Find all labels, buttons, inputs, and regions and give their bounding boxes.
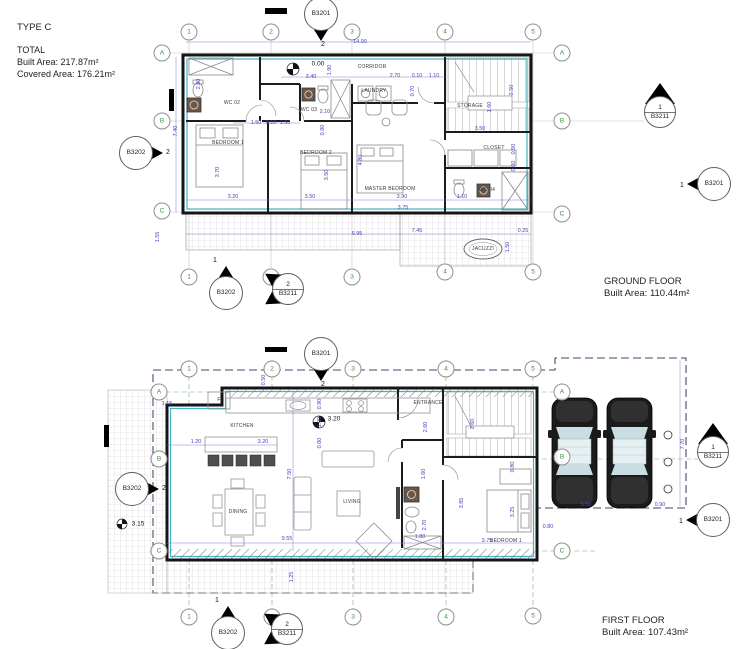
first-staircase	[447, 392, 531, 456]
ground-floor-titleblock: GROUND FLOOR Built Area: 110.44m²	[604, 276, 689, 300]
ground-floor-built-area: Built Area: 110.44m²	[604, 288, 689, 300]
type-label: TYPE C	[17, 22, 115, 34]
drawing-sheet: TYPE C TOTAL Built Area: 217.87m² Covere…	[0, 0, 750, 649]
first-floor-title: FIRST FLOOR	[602, 615, 688, 627]
total-built-area: Built Area: 217.87m²	[17, 56, 115, 68]
ground-floor-plan	[169, 8, 644, 268]
car-icon-1	[548, 398, 601, 508]
section-cut-bar	[104, 425, 109, 447]
jacuzzi-icon	[464, 239, 502, 259]
bollards	[664, 431, 672, 493]
car-icon-2	[603, 398, 656, 508]
bar-stools	[208, 455, 275, 466]
ground-floor-title: GROUND FLOOR	[604, 276, 689, 288]
terrace-first-bottom	[167, 560, 473, 593]
ground-staircase	[447, 58, 529, 132]
first-floor-built-area: Built Area: 107.43m²	[602, 627, 688, 639]
first-floor-plan	[104, 347, 698, 610]
first-floor-titleblock: FIRST FLOOR Built Area: 107.43m²	[602, 615, 688, 639]
sheet-header: TYPE C TOTAL Built Area: 217.87m² Covere…	[17, 22, 115, 80]
terrace-ground-left	[186, 214, 400, 250]
ground-level-marker	[287, 63, 299, 75]
total-covered-area: Covered Area: 176.21m²	[17, 68, 115, 80]
floor-plan-canvas	[0, 0, 750, 649]
section-cut-bar	[265, 347, 287, 352]
total-label: TOTAL	[17, 44, 115, 56]
section-cut-bar	[169, 89, 174, 111]
terrace-ground-right	[400, 214, 531, 266]
section-cut-bar	[265, 8, 287, 14]
terrace-first-left	[108, 390, 167, 593]
first-bottom-wall-hatch	[169, 549, 535, 559]
